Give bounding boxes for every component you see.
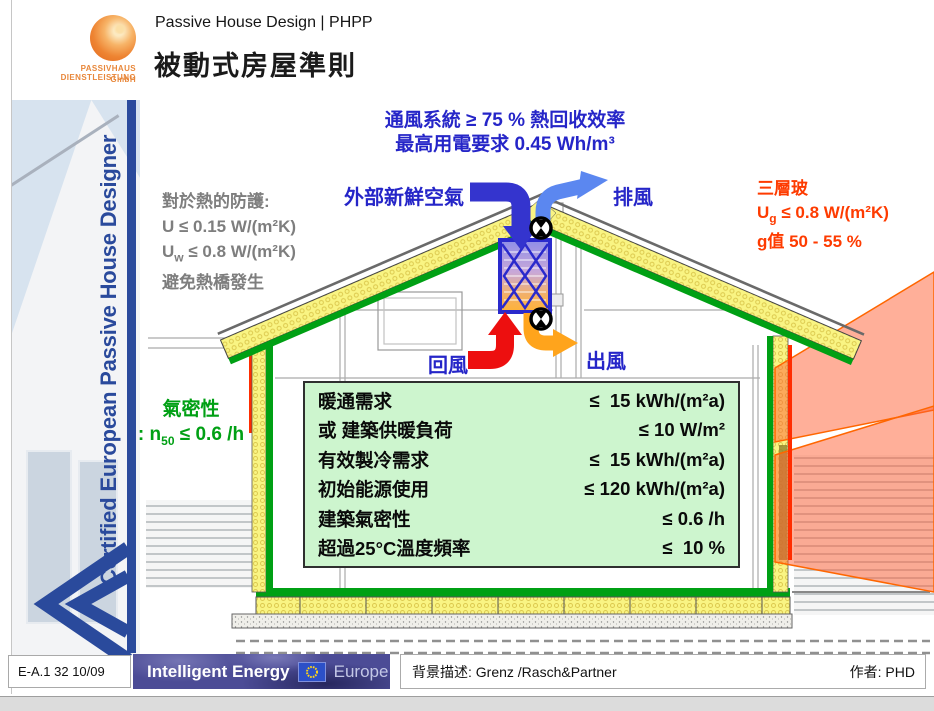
fan-icon xyxy=(531,309,551,329)
window-bottom-strip xyxy=(0,696,934,711)
left-wall xyxy=(249,336,273,592)
airtightness-value: : n50 ≤ 0.6 /h xyxy=(124,422,258,454)
ventilation-note-line2: 最高用電要求 0.45 Wh/m³ xyxy=(338,133,672,157)
glazing-line1: 三層玻 xyxy=(757,177,889,201)
glazing-g-value: g值 50 - 55 % xyxy=(757,230,889,254)
background-credit: 背景描述: Grenz /Rasch&Partner xyxy=(412,662,617,682)
return-air-arrow xyxy=(468,312,522,360)
triple-glazing-line xyxy=(788,345,792,560)
u-value-window: Uw ≤ 0.8 W/(m²K) xyxy=(162,239,296,270)
req-value: ≤ 10 % xyxy=(662,537,725,559)
footer-credit-bar: 背景描述: Grenz /Rasch&Partner 作者: PHD xyxy=(400,654,926,689)
u-value-wall: U ≤ 0.15 W/(m²K) xyxy=(162,214,296,239)
supply-air-label: 出風 xyxy=(586,345,626,374)
exhaust-air-label: 排風 xyxy=(613,181,653,210)
document-reference: E-A.1 32 10/09 xyxy=(8,655,131,688)
heat-protection-line1: 對於熱的防護: xyxy=(162,189,296,214)
ventilation-note-line1: 通風系統 ≥ 75 % 熱回收效率 xyxy=(338,109,672,133)
glazing-note: 三層玻 Ug ≤ 0.8 W/(m²K) g值 50 - 55 % xyxy=(757,177,889,254)
req-label: 暖通需求 xyxy=(318,388,392,414)
author-credit: 作者: PHD xyxy=(850,662,915,682)
fresh-air-label: 外部新鮮空氣 xyxy=(344,181,464,210)
eu-flag-icon xyxy=(298,662,326,682)
ie-logo-bold-text: Intelligent Energy xyxy=(147,662,290,682)
req-label: 初始能源使用 xyxy=(318,476,429,502)
airtightness-note: 氣密性 : n50 ≤ 0.6 /h xyxy=(124,397,258,454)
table-row: 或 建築供暖負荷 ≤ 10 W/m² xyxy=(318,416,725,446)
return-air-label: 回風 xyxy=(428,349,468,378)
glazing-u-value: Ug ≤ 0.8 W/(m²K) xyxy=(757,201,889,230)
table-row: 有效製冷需求 ≤ 15 kWh/(m²a) xyxy=(318,445,725,475)
airtightness-line1: 氣密性 xyxy=(124,397,258,422)
req-value: ≤ 15 kWh/(m²a) xyxy=(589,390,725,412)
req-label: 超過25°C溫度頻率 xyxy=(318,535,470,561)
table-row: 暖通需求 ≤ 15 kWh/(m²a) xyxy=(318,386,725,416)
req-value: ≤ 120 kWh/(m²a) xyxy=(584,478,725,500)
fan-icon xyxy=(531,218,551,238)
thermal-bridge-note: 避免熱橋發生 xyxy=(162,270,296,295)
ie-logo-light-text: Europe xyxy=(334,662,389,682)
req-value: ≤ 15 kWh/(m²a) xyxy=(589,449,725,471)
heat-protection-note: 對於熱的防護: U ≤ 0.15 W/(m²K) Uw ≤ 0.8 W/(m²K… xyxy=(162,189,296,295)
req-value: ≤ 10 W/m² xyxy=(639,419,725,441)
req-label: 有效製冷需求 xyxy=(318,447,429,473)
table-row: 超過25°C溫度頻率 ≤ 10 % xyxy=(318,534,725,564)
table-row: 初始能源使用 ≤ 120 kWh/(m²a) xyxy=(318,475,725,505)
req-value: ≤ 0.6 /h xyxy=(662,508,725,530)
slide: PASSIVHAUS DIENSTLEISTUNG GmbH Passive H… xyxy=(0,0,934,711)
ventilation-note: 通風系統 ≥ 75 % 熱回收效率 最高用電要求 0.45 Wh/m³ xyxy=(338,109,672,157)
requirements-table: 暖通需求 ≤ 15 kWh/(m²a) 或 建築供暖負荷 ≤ 10 W/m² 有… xyxy=(303,381,740,568)
heat-recovery-unit xyxy=(500,240,563,312)
req-label: 建築氣密性 xyxy=(318,506,411,532)
req-label: 或 建築供暖負荷 xyxy=(318,417,453,443)
right-airtight-layer xyxy=(767,336,773,592)
table-row: 建築氣密性 ≤ 0.6 /h xyxy=(318,504,725,534)
intelligent-energy-europe-logo: Intelligent Energy Europe xyxy=(133,654,390,689)
